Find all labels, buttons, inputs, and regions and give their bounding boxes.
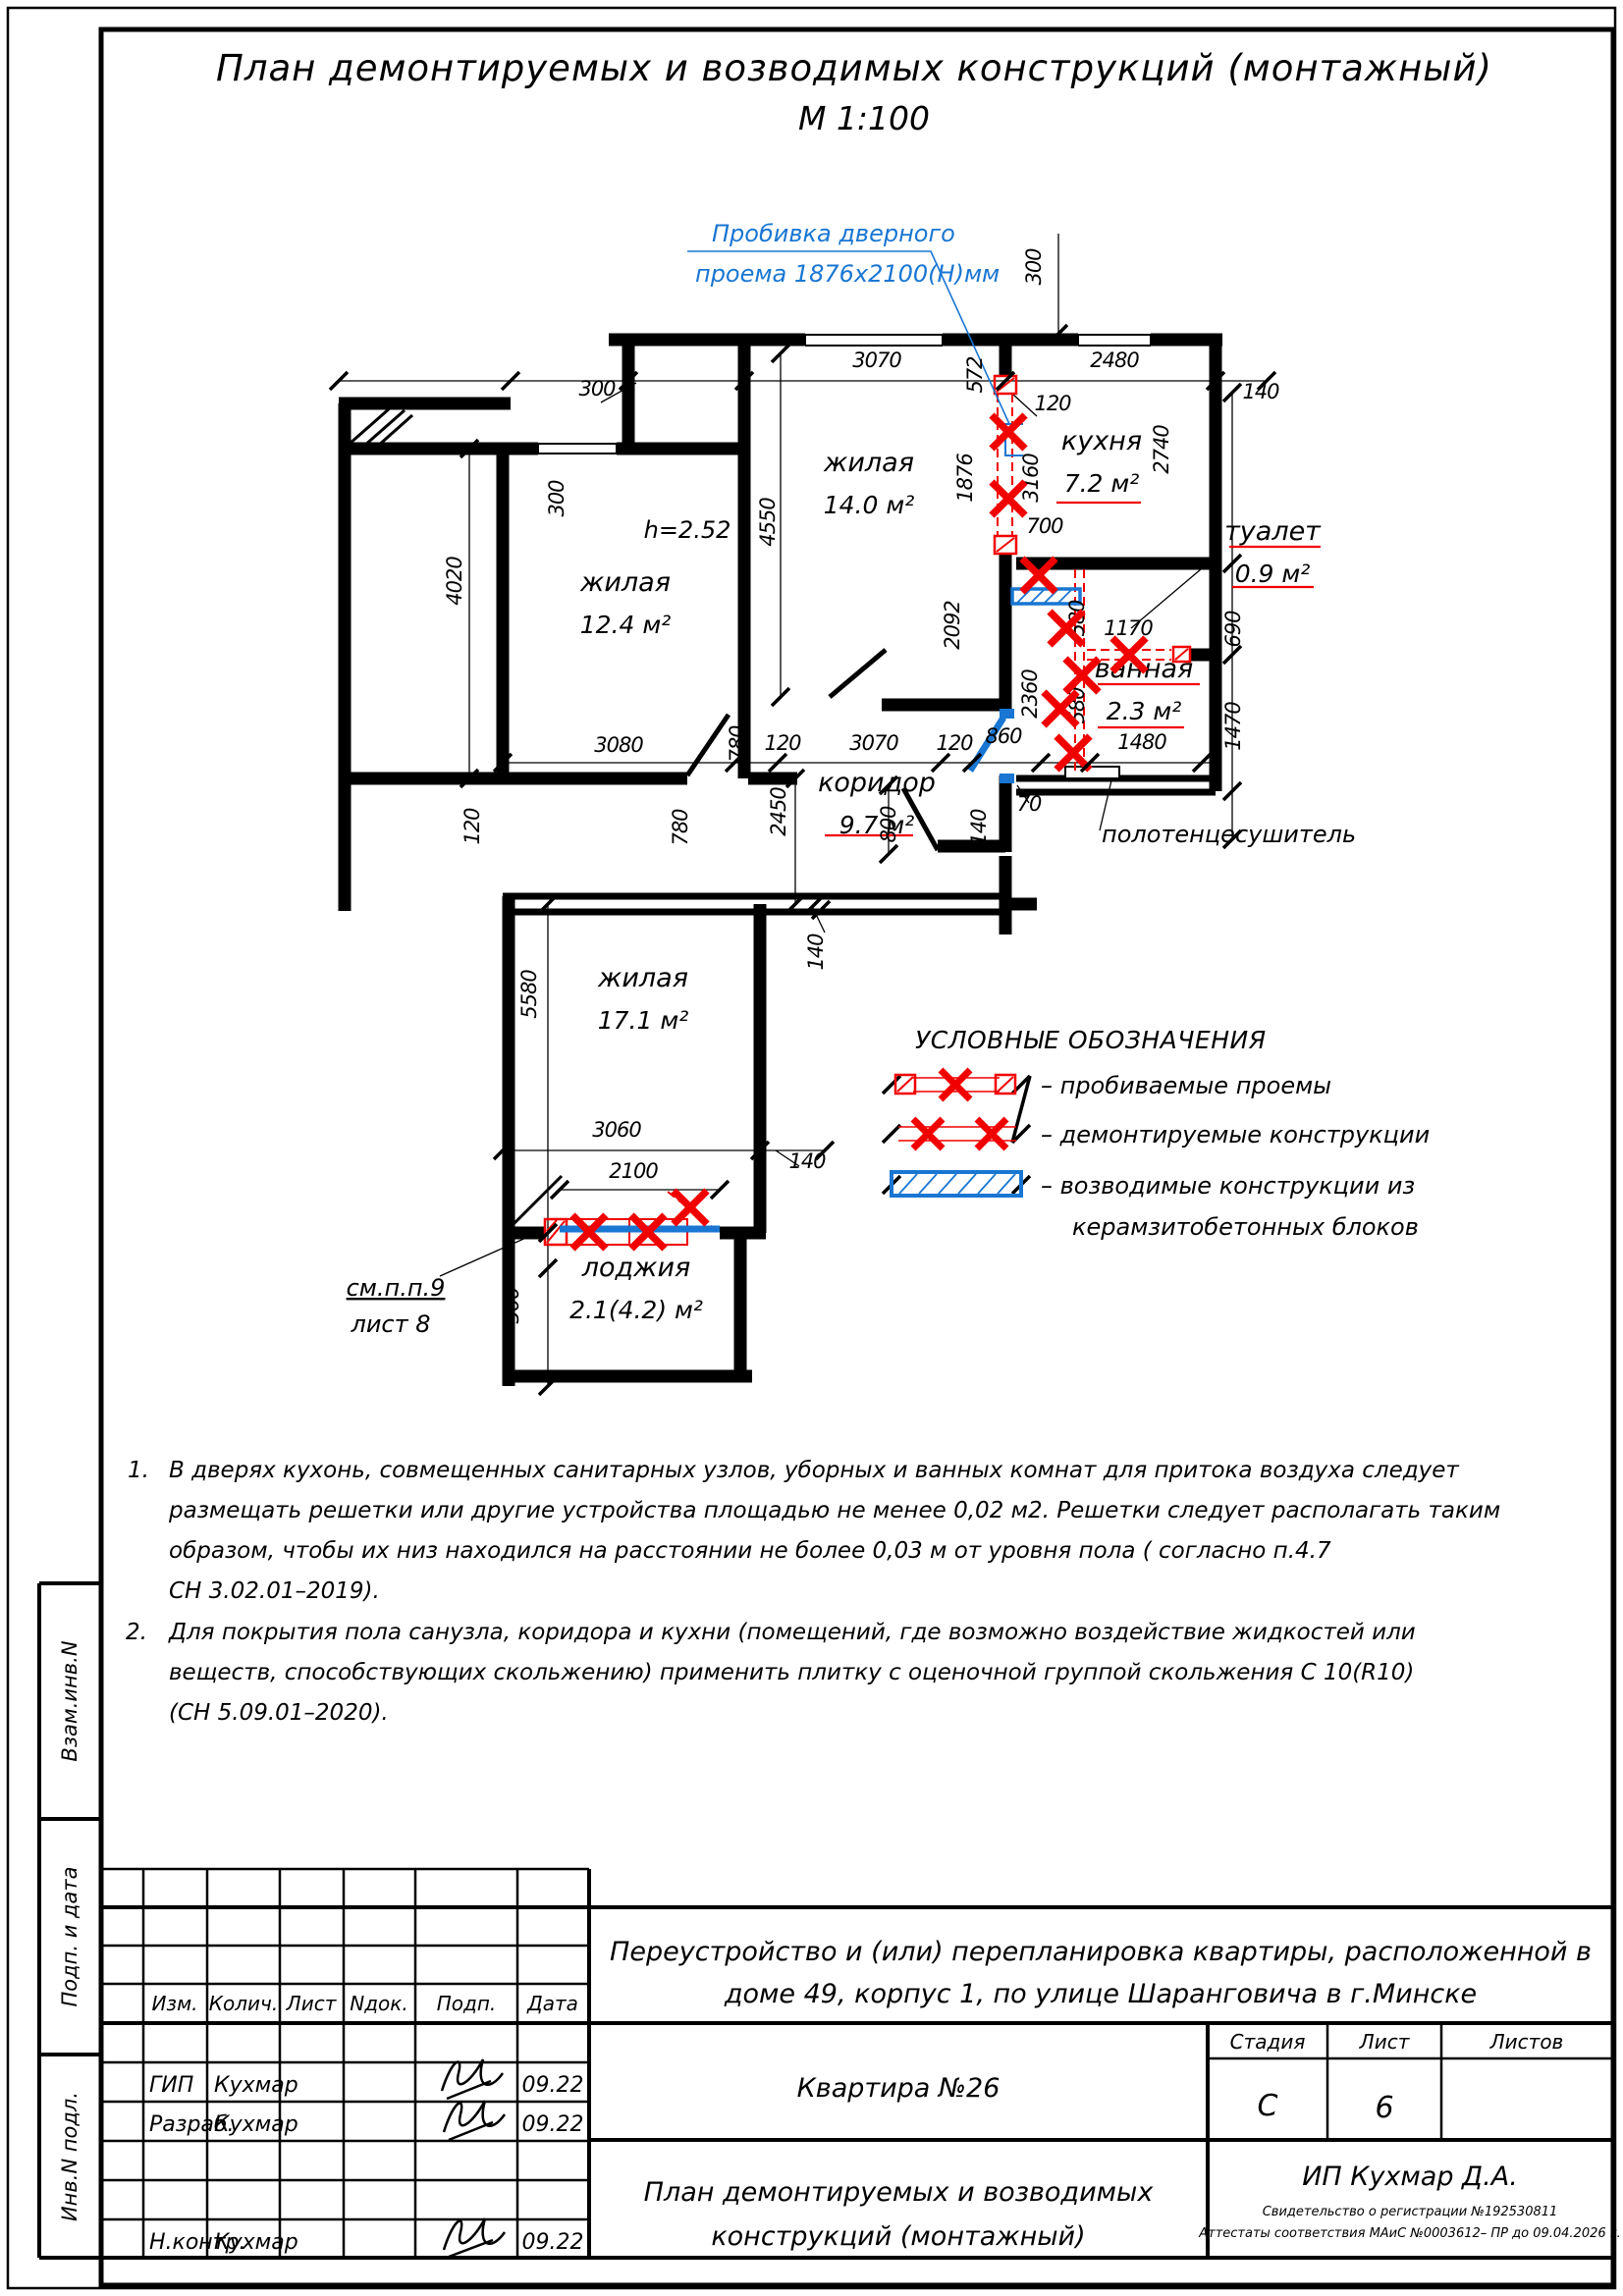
sheet-title: План демонтируемых и возводимых конструк… (216, 47, 1492, 89)
dim-label: 2740 (1150, 425, 1173, 474)
tb-side-podp: Подп. и дата (58, 1866, 81, 2006)
room-area-label: 7.2 м² (1064, 469, 1140, 498)
note-2-number: 2. (126, 1620, 147, 1645)
room-name-label: жилая (579, 567, 671, 598)
legend-item-new-blocks-line2: керамзитобетонных блоков (1072, 1213, 1419, 1241)
dim-label: 300 (500, 1287, 523, 1324)
room-area-label: 0.9 м² (1235, 560, 1311, 588)
dim-label: 700 (1026, 514, 1063, 538)
dim-label: 300 (1022, 248, 1046, 286)
dim-label: 120 (936, 731, 973, 755)
tb-project-line2: доме 49, корпус 1, по улице Шаранговича … (724, 1979, 1477, 2009)
dim-label: 120 (764, 731, 801, 755)
tb-col-ndok: Nдок. (350, 1992, 407, 2015)
see-sheet-note-line2: лист 8 (350, 1310, 430, 1338)
tb-date-nkontr: 09.22 (522, 2230, 584, 2255)
tb-col-list: Лист (286, 1992, 338, 2015)
note-1-line2: размещать решетки или другие устройства … (168, 1498, 1500, 1523)
annotation-opening-line2: проема 1876х2100(Н)мм (695, 260, 1000, 288)
dim-label: 140 (804, 934, 828, 971)
tb-date-razrab: 09.22 (522, 2112, 584, 2137)
room-area-label: 2.3 м² (1107, 697, 1182, 725)
legend-item-pierced: – пробиваемые проемы (1041, 1072, 1331, 1099)
dim-label: 1876 (953, 454, 977, 503)
room-name-label: жилая (823, 448, 914, 478)
dim-label: 780 (669, 809, 692, 846)
tb-stage-value: С (1258, 2089, 1278, 2123)
dim-label: 572 (963, 356, 987, 394)
dim-label: 2092 (941, 601, 964, 650)
tb-cert-line1: Свидетельство о регистрации №192530811 (1263, 2205, 1558, 2219)
note-1-number: 1. (128, 1458, 149, 1483)
dim-label: 1470 (1221, 702, 1245, 751)
tb-date-gip: 09.22 (522, 2073, 584, 2098)
room-name-label: лоджия (581, 1253, 691, 1283)
tb-name-razrab: Кухмар (214, 2112, 298, 2137)
tb-project-line1: Переустройство и (или) перепланировка кв… (610, 1937, 1592, 1967)
ceiling-height-label: h=2.52 (644, 516, 731, 544)
tb-sheets-label: Листов (1489, 2030, 1564, 2054)
room-name-label: жилая (597, 963, 688, 993)
tb-stage-label: Стадия (1230, 2030, 1306, 2054)
tb-name-nkontr: Кухмар (214, 2230, 298, 2255)
dim-label: 4020 (443, 557, 466, 606)
dim-label: 1480 (1117, 730, 1166, 754)
tb-role-gip: ГИП (149, 2073, 193, 2098)
dim-label: 2100 (609, 1159, 658, 1183)
tb-object: Квартира №26 (797, 2073, 1001, 2104)
note-2-line1: Для покрытия пола санузла, коридора и ку… (168, 1620, 1416, 1645)
annotation-opening-line1: Пробивка дверного (712, 220, 955, 247)
dim-label: 5580 (517, 970, 541, 1019)
dim-label: 3060 (592, 1118, 641, 1142)
tb-cert-line2: Аттестаты соответствия МАиС №0003612– ПР… (1198, 2226, 1621, 2241)
dim-label: 3070 (849, 731, 898, 755)
dim-label: 300 (578, 377, 616, 400)
demolition-marks (545, 376, 1321, 1245)
dim-label: 140 (1242, 380, 1279, 403)
room-area-label: 14.0 м² (824, 491, 915, 519)
room-name-label: кухня (1061, 426, 1142, 456)
legend-item-new-blocks-line1: – возводимые конструкции из (1041, 1172, 1415, 1200)
dim-label: 120 (460, 808, 484, 845)
dim-label: 3070 (852, 348, 901, 372)
drawing-sheet: { "page": { "title": "План демонтируемых… (0, 0, 1623, 2296)
room-area-label: 2.1(4.2) м² (569, 1296, 703, 1324)
tb-col-podp: Подп. (437, 1992, 497, 2015)
dim-label: 2480 (1090, 348, 1139, 372)
dim-label: 3160 (1019, 454, 1043, 503)
note-1-line1: В дверях кухонь, совмещенных санитарных … (169, 1458, 1459, 1483)
tb-side-vzam: Взам.инв.N (58, 1640, 81, 1761)
tb-doc-line1: План демонтируемых и возводимых (644, 2177, 1155, 2208)
room-area-label: 17.1 м² (598, 1006, 689, 1035)
note-1-line3: образом, чтобы их низ находился на расст… (169, 1538, 1331, 1564)
dim-label: 2360 (1018, 669, 1042, 719)
dim-label: 1170 (1104, 616, 1153, 640)
tb-company: ИП Кухмар Д.А. (1302, 2162, 1518, 2192)
room-name-label: коридор (818, 768, 936, 798)
legend: УСЛОВНЫЕ ОБОЗНАЧЕНИЯ – пробиваемые проем… (883, 1026, 1430, 1241)
dim-label: 2450 (767, 787, 790, 836)
dim-label: 140 (967, 809, 991, 846)
notes: 1. В дверях кухонь, совмещенных санитарн… (126, 1458, 1500, 1726)
dim-label: 690 (1221, 611, 1245, 648)
tb-col-data: Дата (526, 1992, 578, 2015)
tb-name-gip: Кухмар (214, 2073, 298, 2098)
tb-col-kolich: Колич. (209, 1992, 278, 2015)
note-1-line4: СН 3.02.01–2019). (169, 1578, 380, 1604)
floor-plan-drawing: План демонтируемых и возводимых конструк… (0, 0, 1623, 2296)
tb-sheet-label: Лист (1359, 2030, 1411, 2054)
dim-label: 70 (1017, 792, 1042, 816)
room-name-label: туалет (1224, 516, 1322, 547)
note-2-line2: веществ, способствующих скольжению) прим… (169, 1660, 1414, 1685)
tb-doc-line2: конструкций (монтажный) (711, 2221, 1085, 2252)
towel-rail-icon (1065, 767, 1119, 778)
dim-label: 860 (985, 724, 1022, 748)
see-sheet-note-line1: см.п.п.9 (347, 1274, 446, 1302)
dim-label: 300 (545, 480, 568, 517)
dim-label: 120 (1034, 392, 1071, 415)
room-area-label: 12.4 м² (580, 611, 672, 639)
legend-title: УСЛОВНЫЕ ОБОЗНАЧЕНИЯ (915, 1026, 1267, 1054)
tb-sheet-value: 6 (1375, 2091, 1393, 2125)
dim-label: 780 (726, 725, 749, 763)
dim-label: 3080 (594, 733, 643, 757)
note-2-line3: (СН 5.09.01–2020). (169, 1700, 389, 1726)
signature (442, 2059, 505, 2257)
sheet-scale: М 1:100 (798, 99, 930, 137)
legend-item-demolished: – демонтируемые конструкции (1041, 1121, 1430, 1148)
dim-label: 4550 (756, 498, 780, 547)
room-area-label: 9.7 м² (839, 811, 915, 839)
tb-col-izm: Изм. (151, 1992, 197, 2015)
tb-side-inv: Инв.N подл. (58, 2092, 81, 2221)
